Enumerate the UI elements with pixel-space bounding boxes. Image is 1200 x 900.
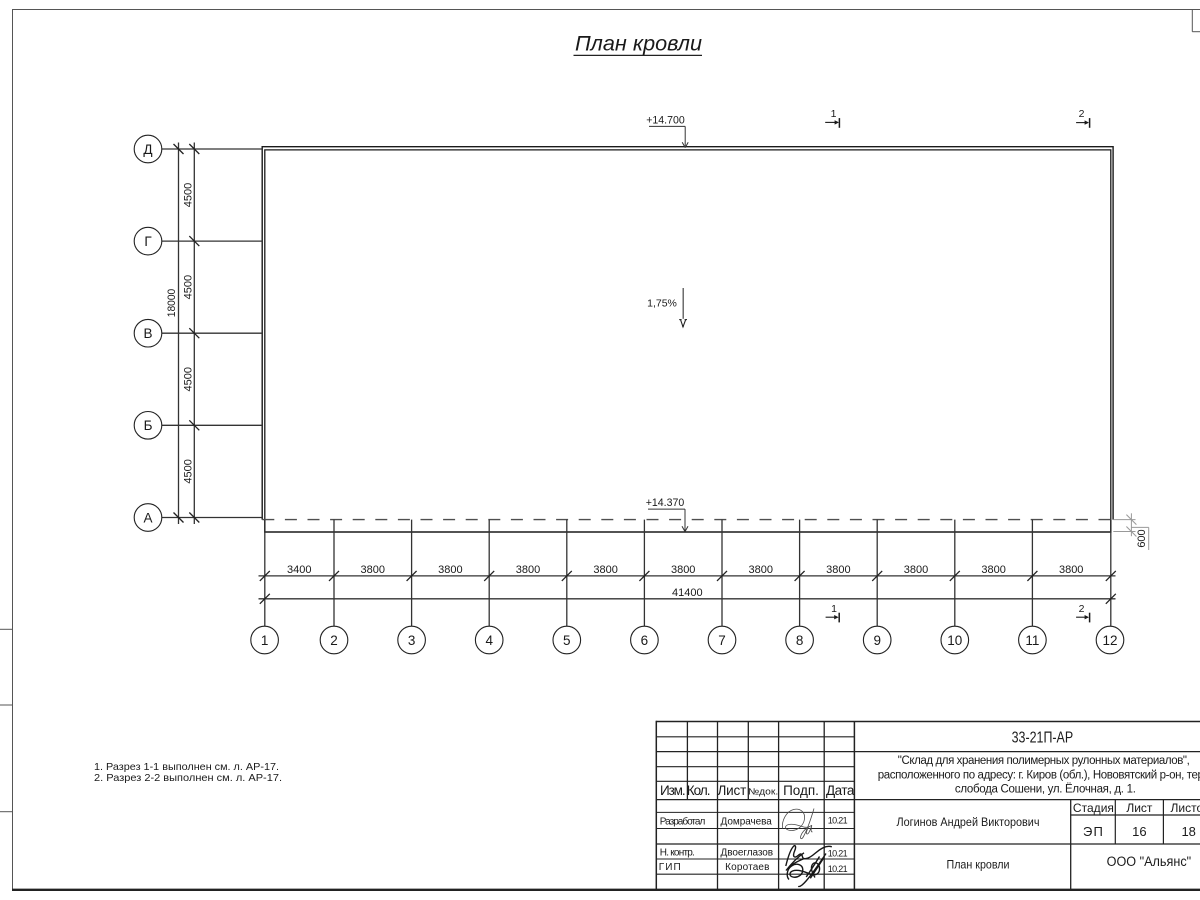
- svg-text:Логинов Андрей Викторович: Логинов Андрей Викторович: [897, 815, 1040, 829]
- svg-text:10.21: 10.21: [828, 816, 848, 826]
- svg-text:4500: 4500: [183, 459, 195, 483]
- svg-text:ООО "Альянс": ООО "Альянс": [1107, 854, 1192, 869]
- svg-text:Стадия: Стадия: [1073, 801, 1114, 815]
- svg-text:2: 2: [330, 633, 338, 648]
- svg-text:План кровли: План кровли: [947, 857, 1010, 871]
- svg-text:ГИП: ГИП: [659, 862, 681, 873]
- svg-text:3800: 3800: [749, 564, 773, 576]
- svg-text:7: 7: [718, 633, 726, 648]
- svg-text:Лист: Лист: [1126, 801, 1153, 815]
- svg-text:4500: 4500: [183, 275, 195, 299]
- svg-text:Кол.: Кол.: [687, 783, 711, 798]
- svg-text:расположенного по адресу: г. К: расположенного по адресу: г. Киров (обл.…: [878, 769, 1200, 781]
- svg-text:4: 4: [485, 633, 493, 648]
- svg-text:1: 1: [831, 108, 837, 120]
- svg-text:3: 3: [408, 633, 416, 648]
- svg-text:9: 9: [873, 633, 881, 648]
- svg-text:3800: 3800: [1059, 564, 1083, 576]
- svg-text:2: 2: [1079, 603, 1085, 615]
- svg-text:3800: 3800: [438, 564, 462, 576]
- svg-text:18: 18: [1181, 824, 1195, 839]
- svg-text:5: 5: [563, 633, 571, 648]
- svg-text:А: А: [143, 510, 152, 525]
- svg-text:+14.700: +14.700: [646, 115, 685, 127]
- svg-text:Изм.: Изм.: [660, 783, 686, 798]
- svg-text:11: 11: [1025, 633, 1039, 648]
- svg-text:В: В: [143, 326, 152, 341]
- svg-text:10.21: 10.21: [828, 849, 848, 859]
- svg-text:3800: 3800: [981, 564, 1005, 576]
- svg-text:Разработал: Разработал: [660, 816, 706, 828]
- svg-text:3400: 3400: [287, 564, 311, 576]
- svg-text:3800: 3800: [516, 564, 540, 576]
- svg-text:12: 12: [1102, 633, 1117, 648]
- svg-text:16: 16: [1132, 824, 1146, 839]
- svg-text:2: 2: [1079, 108, 1085, 120]
- svg-text:Лист: Лист: [718, 783, 747, 798]
- svg-text:3800: 3800: [361, 564, 385, 576]
- svg-text:33-21П-АР: 33-21П-АР: [1012, 729, 1074, 746]
- svg-text:41400: 41400: [672, 587, 703, 599]
- svg-text:3800: 3800: [593, 564, 617, 576]
- svg-text:Н. контр.: Н. контр.: [660, 847, 695, 858]
- svg-text:"Склад для хранения полимерных: "Склад для хранения полимерных рулонных …: [898, 755, 1190, 767]
- svg-text:3800: 3800: [826, 564, 850, 576]
- svg-text:10: 10: [947, 633, 962, 648]
- svg-text:Коротаев: Коротаев: [725, 862, 769, 873]
- svg-text:Д: Д: [143, 142, 152, 157]
- svg-text:4500: 4500: [183, 367, 195, 391]
- svg-text:Г: Г: [144, 234, 152, 249]
- svg-text:3800: 3800: [904, 564, 928, 576]
- svg-text:6: 6: [641, 633, 649, 648]
- svg-text:600: 600: [1136, 529, 1148, 547]
- svg-text:1: 1: [831, 603, 837, 615]
- svg-text:1: 1: [261, 633, 269, 648]
- svg-text:8: 8: [796, 633, 804, 648]
- svg-text:4500: 4500: [183, 183, 195, 207]
- svg-text:18000: 18000: [166, 289, 178, 318]
- svg-text:Подп.: Подп.: [783, 783, 819, 798]
- svg-text:ЭП: ЭП: [1083, 824, 1103, 839]
- svg-text:2. Разрез 2-2 выполнен см. л.: 2. Разрез 2-2 выполнен см. л. АР-17.: [94, 772, 282, 784]
- svg-text:Дата: Дата: [826, 783, 855, 798]
- svg-text:+14.370: +14.370: [646, 497, 685, 509]
- svg-text:3800: 3800: [671, 564, 695, 576]
- svg-text:План кровли: План кровли: [575, 33, 702, 56]
- svg-text:Двоеглазов: Двоеглазов: [721, 847, 774, 858]
- svg-text:10.21: 10.21: [828, 864, 848, 874]
- svg-text:Домрачева: Домрачева: [721, 817, 773, 828]
- svg-text:№док.: №док.: [748, 786, 778, 796]
- svg-text:1,75%: 1,75%: [647, 298, 677, 310]
- svg-text:слобода Сошени, ул. Ёлочная, д: слобода Сошени, ул. Ёлочная, д. 1.: [955, 784, 1136, 796]
- svg-text:Листов: Листов: [1171, 801, 1200, 815]
- svg-text:Б: Б: [144, 418, 153, 433]
